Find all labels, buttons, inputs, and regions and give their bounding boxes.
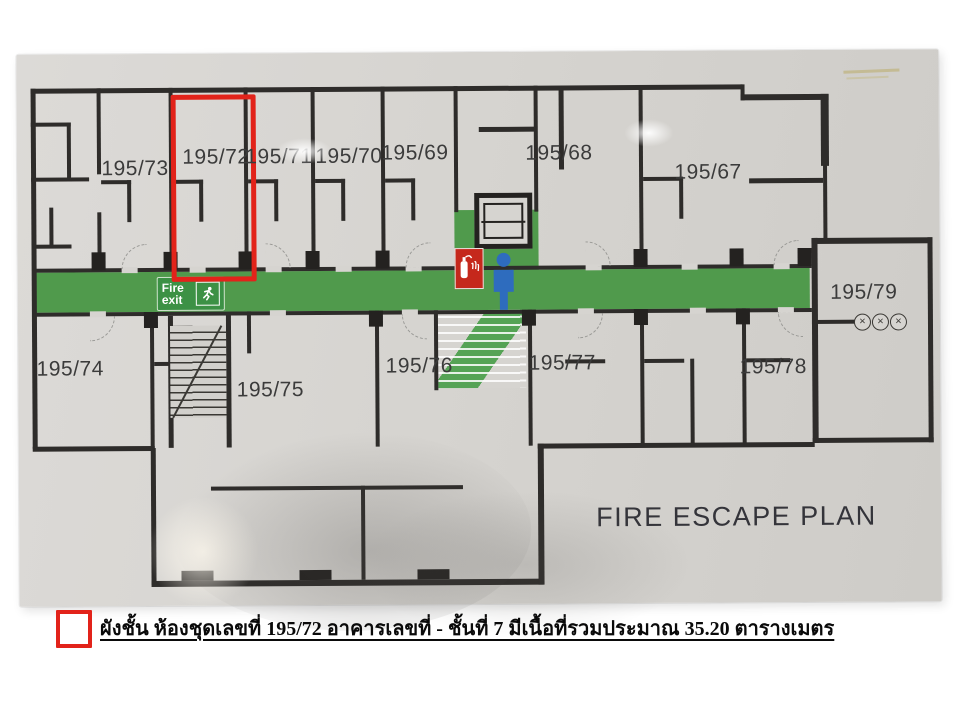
wall-segment bbox=[31, 177, 89, 181]
wall-segment bbox=[49, 208, 53, 248]
pier bbox=[522, 310, 536, 326]
wall-segment bbox=[823, 164, 827, 240]
door-gap bbox=[682, 264, 698, 270]
plan-title: FIRE ESCAPE PLAN bbox=[596, 501, 876, 534]
fire-exit-label: Fire exit bbox=[162, 282, 184, 306]
room-label: 195/69 bbox=[381, 141, 448, 165]
wall-segment bbox=[33, 446, 155, 452]
wall-segment bbox=[749, 178, 823, 183]
legend-row: ผังชั้น ห้องชุดเลขที่ 195/72 อาคารเลขที่… bbox=[0, 604, 960, 654]
elevator-rod bbox=[481, 221, 525, 223]
room-label: 195/74 bbox=[37, 357, 104, 381]
wall-segment bbox=[411, 178, 415, 220]
wall-segment bbox=[127, 180, 131, 222]
wall-segment bbox=[528, 310, 533, 446]
door-arc bbox=[405, 242, 430, 267]
window-symbol-icon: × bbox=[854, 314, 871, 331]
door-gap bbox=[690, 308, 706, 314]
light-reflection bbox=[624, 119, 674, 147]
room-label: 195/68 bbox=[525, 141, 592, 165]
wall-segment bbox=[813, 437, 934, 443]
wall-segment bbox=[151, 448, 157, 585]
light-reflection bbox=[143, 491, 264, 612]
pier bbox=[144, 312, 158, 328]
wall-segment bbox=[67, 122, 71, 180]
wall-segment bbox=[211, 485, 463, 491]
wall-segment bbox=[31, 84, 743, 93]
room-label: 195/67 bbox=[674, 160, 741, 184]
fire-exit-line2: exit bbox=[162, 294, 184, 306]
pier bbox=[736, 308, 750, 324]
room-label-highlighted: 195/72 bbox=[182, 145, 249, 169]
legend-highlight-swatch bbox=[56, 610, 92, 648]
wall-segment bbox=[741, 94, 829, 101]
wall-segment bbox=[454, 86, 459, 212]
stairs-icon bbox=[170, 326, 227, 418]
highlight-rectangle bbox=[171, 94, 257, 282]
door-arc bbox=[121, 244, 146, 269]
photo-shadow bbox=[171, 430, 532, 632]
wall-segment bbox=[479, 127, 535, 132]
wall-segment bbox=[361, 486, 366, 580]
wall-segment bbox=[927, 237, 933, 442]
pier bbox=[634, 309, 648, 325]
floor-plan: × × × bbox=[28, 57, 936, 603]
running-man-icon bbox=[196, 282, 220, 306]
pier bbox=[730, 248, 744, 266]
wall-segment bbox=[31, 244, 71, 248]
window-symbol-icon: × bbox=[872, 313, 889, 330]
wall-segment bbox=[811, 237, 932, 244]
fire-escape-plan-photo: × × × bbox=[16, 49, 941, 607]
room-label: 195/78 bbox=[740, 355, 807, 379]
legend-caption: ผังชั้น ห้องชุดเลขที่ 195/72 อาคารเลขที่… bbox=[100, 612, 920, 644]
door-arc bbox=[402, 314, 427, 339]
pier bbox=[798, 248, 812, 266]
pier bbox=[417, 569, 449, 579]
wall-segment bbox=[640, 309, 645, 445]
room-label: 195/75 bbox=[237, 378, 304, 402]
door-arc bbox=[90, 316, 115, 341]
escape-route-corridor bbox=[35, 268, 810, 313]
wall-segment bbox=[375, 311, 380, 447]
pier bbox=[369, 311, 383, 327]
wall-segment bbox=[341, 179, 345, 221]
wall-segment bbox=[690, 359, 695, 445]
wall-segment bbox=[247, 311, 251, 353]
pier bbox=[181, 571, 213, 581]
door-gap bbox=[270, 310, 286, 316]
door-arc bbox=[578, 313, 603, 338]
wall-segment bbox=[538, 444, 545, 585]
door-arc bbox=[585, 241, 610, 266]
room-label: 195/77 bbox=[529, 351, 596, 375]
wall-segment bbox=[811, 238, 818, 443]
room-label: 195/76 bbox=[386, 354, 453, 378]
person-location-icon bbox=[488, 252, 520, 312]
room-label: 195/71 bbox=[245, 145, 312, 169]
wall-segment bbox=[31, 122, 71, 126]
door-arc bbox=[778, 312, 803, 337]
door-arc bbox=[265, 243, 290, 268]
wall-segment bbox=[150, 312, 155, 448]
door-arc bbox=[773, 240, 798, 265]
door-gap bbox=[336, 266, 352, 272]
stair-diagonal bbox=[172, 325, 222, 418]
fire-extinguisher-icon bbox=[455, 248, 484, 289]
wall-segment bbox=[274, 179, 278, 221]
pier bbox=[92, 252, 106, 270]
wall-segment bbox=[538, 442, 815, 449]
wall-segment bbox=[644, 359, 684, 363]
wall-segment bbox=[821, 94, 829, 166]
elevator-icon bbox=[474, 193, 532, 249]
pier bbox=[299, 570, 331, 580]
pier bbox=[306, 251, 320, 269]
pier bbox=[634, 249, 648, 267]
window-symbol-icon: × bbox=[890, 313, 907, 330]
room-label: 195/70 bbox=[315, 145, 382, 169]
room-label: 195/73 bbox=[101, 157, 168, 181]
wall-segment bbox=[226, 316, 232, 448]
room-label: 195/79 bbox=[830, 280, 897, 304]
pier bbox=[376, 251, 390, 269]
